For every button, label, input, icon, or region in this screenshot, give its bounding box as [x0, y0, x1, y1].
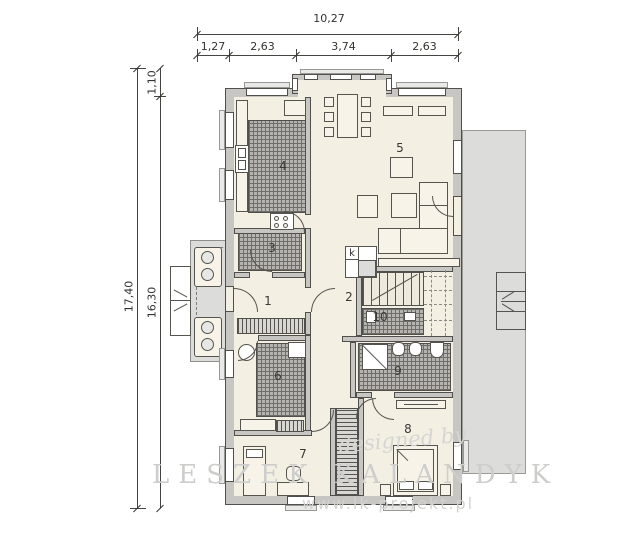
interior-wall: [272, 272, 305, 278]
bathroom-window: [225, 350, 234, 378]
fireplace-step: [358, 260, 376, 277]
bay-window: [304, 74, 318, 80]
kitchen-left-window-2: [225, 170, 234, 200]
dining-chair: [361, 112, 371, 122]
terrace-door-opening: [453, 196, 462, 236]
room-label-corridor: 2: [345, 290, 353, 304]
sideboard: [383, 106, 413, 116]
basin: [392, 342, 405, 356]
interior-wall: [350, 342, 356, 398]
stairs-dashed: [424, 276, 452, 277]
room-label-hall: 1: [264, 294, 272, 308]
bathroom6-radiator: [276, 420, 304, 432]
dresser-line: [404, 404, 438, 405]
toilet: [430, 342, 444, 358]
dim-top-seg-4: 2,63: [391, 40, 458, 53]
living-top-window: [398, 88, 446, 96]
hall-wardrobe: [237, 318, 305, 334]
porch-column: [201, 268, 214, 281]
watermark-url: www.lk-projekt.pl: [302, 494, 462, 513]
sofa-corner-horizontal: [378, 228, 448, 254]
interior-wall: [258, 335, 311, 341]
interior-wall: [305, 312, 311, 335]
tv-sideboard: [378, 258, 460, 267]
dim-left-outer: 17,40: [123, 276, 136, 318]
dining-chair: [361, 97, 371, 107]
bay-window-side: [386, 78, 392, 91]
vanity: [240, 419, 276, 431]
dim-left-inner: 16,30: [146, 282, 159, 324]
terrace-arrow-line: [501, 301, 526, 302]
dining-table: [337, 94, 358, 138]
dining-chair: [324, 112, 334, 122]
entry-door-opening: [225, 286, 234, 312]
dim-top-total: 10,27: [298, 12, 360, 25]
kitchen-fridge: [284, 100, 306, 116]
fireplace-label: k: [349, 248, 355, 259]
water-heater: [288, 342, 306, 358]
porch-column: [201, 321, 214, 334]
interior-wall: [305, 228, 311, 288]
kitchen-tiled-floor: [248, 120, 306, 213]
porch-column: [201, 251, 214, 264]
dim-left-offset: 1,10: [146, 63, 159, 103]
steps-arrow-line: [170, 300, 191, 301]
dim-top-line-total: [197, 34, 458, 35]
kitchen-left-window: [225, 112, 234, 148]
dim-top-seg-1: 1,27: [197, 40, 229, 53]
terrace-steps-line: [496, 311, 526, 312]
room-label-kitchen: 4: [279, 159, 287, 173]
coffee-table: [391, 193, 417, 218]
cooktop-burner: [274, 223, 279, 228]
watermark-author: LESZEK KALANDYK: [152, 460, 559, 490]
pillow: [246, 449, 263, 458]
stairs-dashed: [424, 320, 452, 321]
stairs-dashed: [445, 270, 446, 336]
armchair: [357, 195, 378, 218]
floor-plan-canvas: 10,27 1,27 2,63 3,74 2,63 17,40 16,30 1,…: [0, 0, 638, 556]
dim-left-line-outer: [137, 68, 138, 508]
kitchen-top-window: [246, 88, 288, 96]
dining-chair: [324, 127, 334, 137]
kitchen-sink-basin: [238, 160, 246, 170]
porch-column: [201, 338, 214, 351]
living-right-window: [453, 140, 462, 174]
room-label-wc10: 10: [372, 310, 387, 324]
dining-chair: [361, 127, 371, 137]
room-label-bathroom6: 6: [274, 369, 282, 383]
room-label-pantry: 3: [268, 241, 276, 255]
room-label-bathroom9: 9: [394, 364, 402, 378]
interior-wall: [394, 392, 453, 398]
dim-top-line-segments: [197, 55, 458, 56]
stairs-dashed: [424, 290, 452, 291]
wc10-basin: [404, 312, 416, 321]
interior-wall: [234, 272, 250, 278]
cooktop-burner: [274, 216, 279, 221]
stairs-dashed: [424, 304, 452, 305]
room-label-bedroom7: 7: [299, 447, 307, 461]
dim-top-seg-3: 3,74: [296, 40, 391, 53]
room-label-living: 5: [396, 141, 404, 155]
bay-window-side: [292, 78, 298, 91]
bay-window: [360, 74, 376, 80]
basin: [409, 342, 422, 356]
stairs-dashed: [431, 270, 432, 336]
armchair: [390, 157, 413, 178]
dining-chair: [324, 97, 334, 107]
sofa-cushion-line: [400, 229, 401, 253]
bay-window: [330, 74, 352, 80]
porch-steps: [170, 266, 191, 336]
dim-left-line-inner: [160, 68, 161, 508]
sideboard: [418, 106, 446, 116]
dim-top-seg-2: 2,63: [229, 40, 296, 53]
kitchen-sink-basin: [238, 148, 246, 158]
fireplace-label-box: k: [345, 246, 359, 260]
